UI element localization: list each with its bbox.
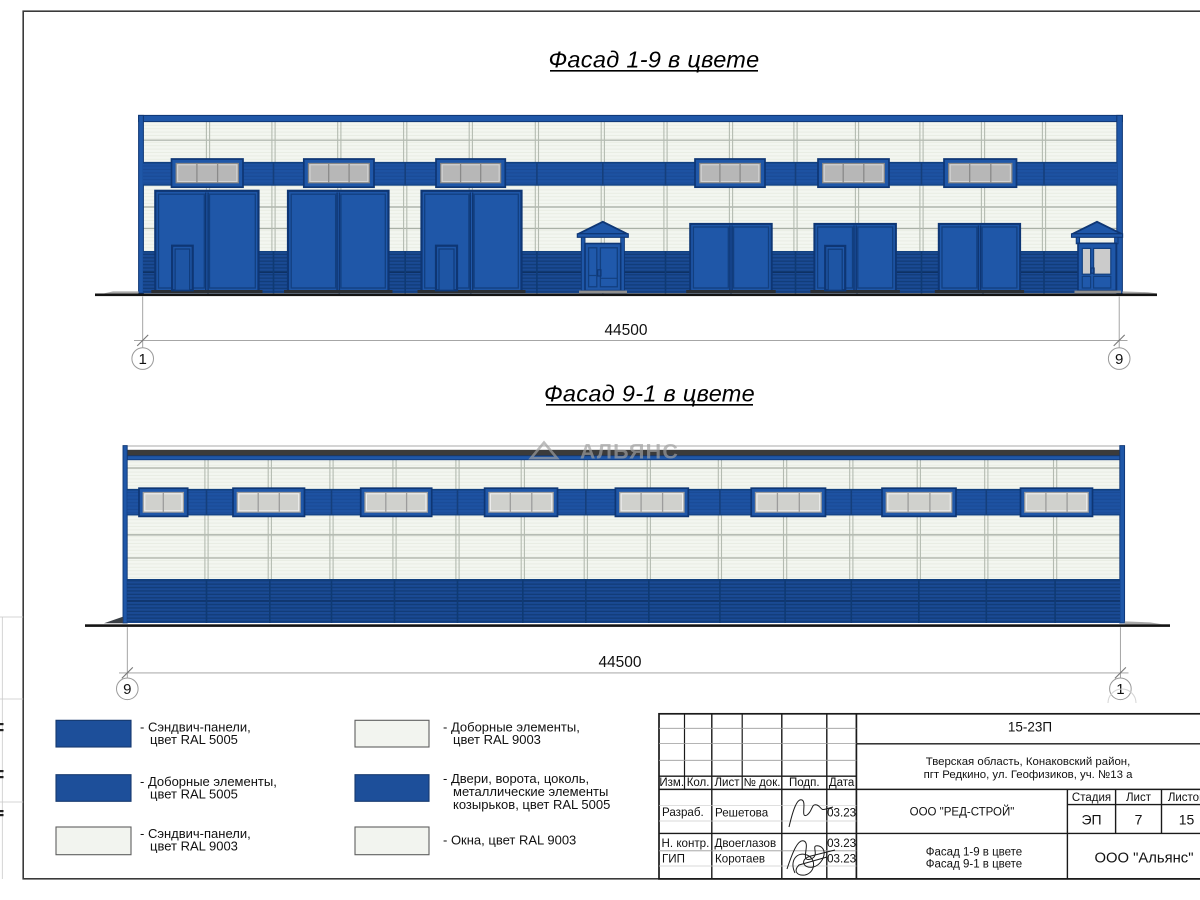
- svg-text:Стадия: Стадия: [1072, 792, 1111, 804]
- svg-text:Кол.: Кол.: [687, 777, 710, 789]
- svg-text:цвет RAL 9003: цвет RAL 9003: [453, 732, 541, 747]
- svg-text:цвет RAL 5005: цвет RAL 5005: [150, 732, 238, 747]
- svg-text:Разраб.: Разраб.: [662, 806, 704, 819]
- svg-text:ГИП: ГИП: [662, 853, 685, 866]
- svg-text:44500: 44500: [604, 322, 647, 339]
- svg-text:Фасад 9-1 в цвете: Фасад 9-1 в цвете: [926, 859, 1022, 871]
- svg-text:Фасад 9-1 в цвете: Фасад 9-1 в цвете: [544, 381, 755, 407]
- svg-text:ЭП: ЭП: [1081, 812, 1101, 828]
- svg-text:АЛЬЯНС: АЛЬЯНС: [580, 440, 679, 464]
- svg-text:15-23П: 15-23П: [1008, 720, 1052, 735]
- svg-text:Коротаев: Коротаев: [715, 853, 765, 866]
- svg-text:1: 1: [139, 351, 147, 368]
- svg-text:7: 7: [1135, 812, 1143, 828]
- svg-text:Фасад 1-9 в цвете: Фасад 1-9 в цвете: [548, 47, 759, 73]
- svg-text:козырьков, цвет RAL 5005: козырьков, цвет RAL 5005: [453, 797, 610, 812]
- svg-text:Тверская область, Конаковский: Тверская область, Конаковский район,: [926, 756, 1131, 768]
- svg-text:Решетова: Решетова: [715, 807, 769, 820]
- svg-text:Листов: Листов: [1168, 792, 1200, 804]
- svg-text:№ док.: № док.: [744, 777, 781, 789]
- svg-text:Фасад 1-9 в цвете: Фасад 1-9 в цвете: [926, 847, 1022, 859]
- svg-text:Изм.: Изм.: [659, 777, 684, 789]
- svg-text:цвет RAL 9003: цвет RAL 9003: [150, 839, 238, 854]
- svg-text:44500: 44500: [598, 654, 641, 671]
- svg-text:15: 15: [1179, 812, 1195, 828]
- svg-text:Лист: Лист: [715, 777, 741, 789]
- svg-text:ООО "Альянс": ООО "Альянс": [1095, 851, 1194, 867]
- svg-text:Н. контр.: Н. контр.: [662, 837, 710, 850]
- svg-text:9: 9: [1115, 351, 1123, 368]
- svg-text:- Окна, цвет RAL 9003: - Окна, цвет RAL 9003: [443, 833, 576, 848]
- svg-text:Двоеглазов: Двоеглазов: [715, 837, 777, 850]
- svg-text:03.23: 03.23: [827, 837, 856, 850]
- svg-text:пгт Редкино, ул. Геофизиков, у: пгт Редкино, ул. Геофизиков, уч. №13 а: [924, 769, 1133, 781]
- svg-text:ООО "РЕД-СТРОЙ": ООО "РЕД-СТРОЙ": [910, 806, 1015, 819]
- svg-text:03.23: 03.23: [827, 853, 856, 866]
- svg-text:9: 9: [123, 681, 131, 698]
- svg-text:Лист: Лист: [1126, 792, 1152, 804]
- svg-text:Подп.: Подп.: [789, 777, 820, 789]
- svg-text:цвет RAL 5005: цвет RAL 5005: [150, 786, 238, 801]
- svg-text:03.23: 03.23: [827, 807, 856, 820]
- svg-text:Дата: Дата: [829, 777, 855, 789]
